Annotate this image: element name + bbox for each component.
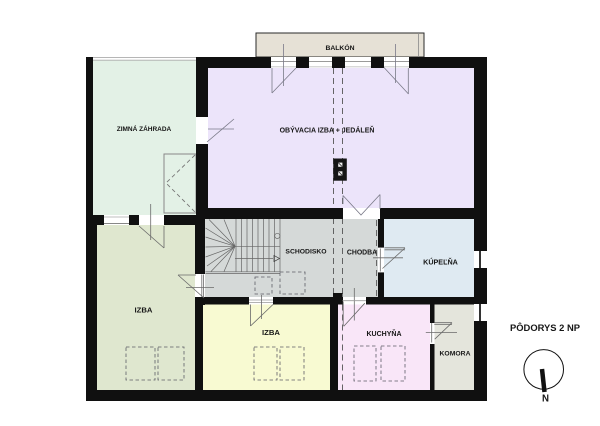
svg-text:OBÝVACIA IZBA + JEDÁLEŇ: OBÝVACIA IZBA + JEDÁLEŇ (280, 126, 375, 135)
svg-text:CHODBA: CHODBA (347, 249, 377, 256)
svg-text:IZBA: IZBA (262, 328, 280, 337)
svg-text:IZBA: IZBA (135, 306, 153, 315)
svg-text:KUCHYŇA: KUCHYŇA (367, 329, 402, 338)
svg-text:N: N (542, 394, 549, 405)
svg-text:ZIMNÁ ZÁHRADA: ZIMNÁ ZÁHRADA (117, 124, 172, 133)
svg-text:BALKÓN: BALKÓN (325, 43, 354, 52)
svg-text:KOMORA: KOMORA (440, 350, 471, 357)
svg-text:SCHODISKO: SCHODISKO (285, 248, 326, 255)
svg-text:KÚPEĽŇA: KÚPEĽŇA (423, 258, 458, 267)
svg-text:PÔDORYS 2 NP: PÔDORYS 2 NP (510, 322, 580, 333)
